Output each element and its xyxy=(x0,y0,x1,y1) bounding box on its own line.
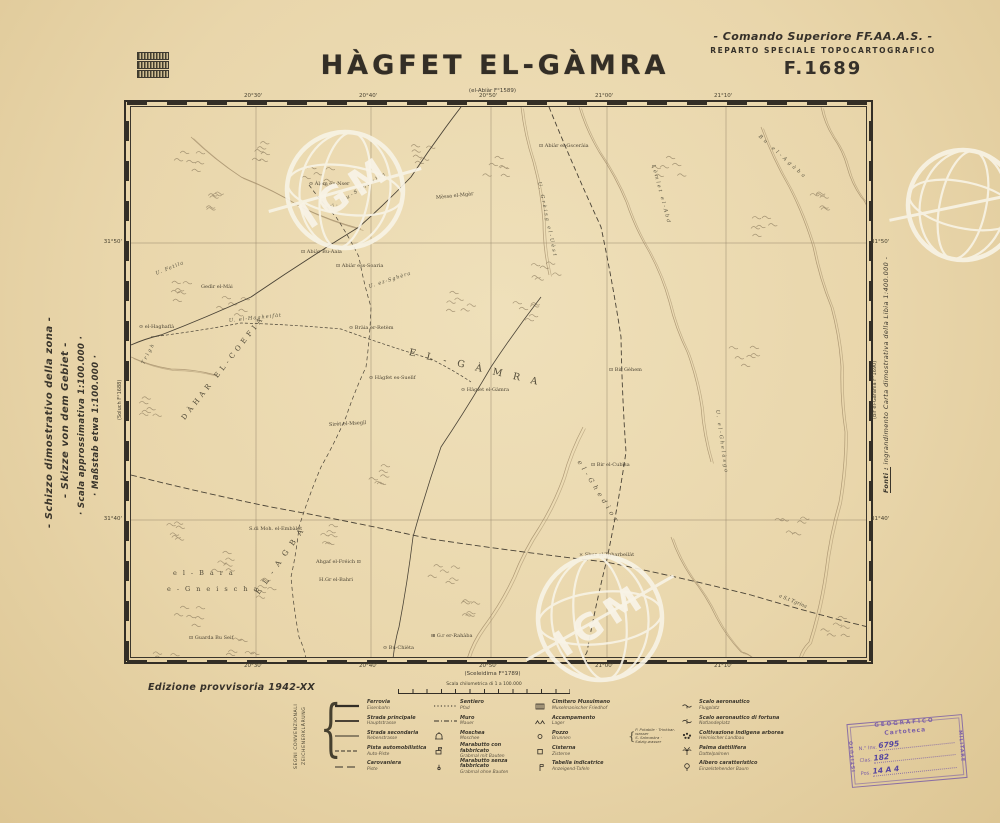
mosque-icon xyxy=(433,731,457,741)
track-icon xyxy=(334,747,364,755)
legend-label-de: Pfad xyxy=(460,706,528,711)
legend-row: Marabutto con fabbricato Grabmal mit Bau… xyxy=(433,745,528,758)
department-line: REPARTO SPECIALE TOPOCARTOGRAFICO xyxy=(708,46,938,55)
map-label: ⊙ Bu-Chièta xyxy=(383,645,414,651)
legend-label: Carovaniera Piste xyxy=(367,761,427,772)
legend-label-it: Marabutto senza fabbricato xyxy=(460,759,528,770)
margin-note-2: - Skizze von dem Gebiet - xyxy=(60,270,71,570)
map-label: H.Gr el-Bahri xyxy=(319,577,353,583)
legend-label-it: Marabutto con fabbricato xyxy=(460,743,528,754)
marab2-icon xyxy=(433,762,457,772)
legend-header-de: ZEICHENERKLÄRUNG xyxy=(302,703,307,769)
legend-symbol-path xyxy=(433,702,457,710)
print-mark xyxy=(137,61,169,69)
legend-symbol-marab2 xyxy=(433,762,446,772)
wall-icon xyxy=(433,717,457,725)
sources-note: Fonti : ingrandimento Carta dimostrativa… xyxy=(882,232,890,517)
tick-label: 20°40' xyxy=(359,663,377,669)
road2-icon xyxy=(334,732,364,740)
legend-row: Sentiero Pfad xyxy=(433,699,528,712)
legend-label: Scalo aeronautico Flugplatz xyxy=(699,700,791,711)
legend-label: Palma dattilifera Dattelpalmen xyxy=(699,746,791,757)
tick-label: 20°50' xyxy=(479,663,497,669)
legend-row: Accampamento Lager xyxy=(534,714,675,727)
map-label: × Sbur el-Tgharbeilàt xyxy=(579,552,634,558)
legend-row: Scalo aeronautico Flugplatz xyxy=(681,699,791,712)
legend-symbol-cem xyxy=(534,701,547,711)
well-brace: { xyxy=(628,730,635,743)
cem-icon xyxy=(534,701,549,711)
legend-label: Scalo aeronautico di fortuna Notlandepla… xyxy=(699,716,791,727)
airfield-icon xyxy=(681,701,696,711)
legend-symbol-tree xyxy=(681,762,694,772)
map-label: ⊡ Guarda Bu Seif xyxy=(189,635,233,641)
map-sheet: HÀGFET EL-GÀMRA - Comando Superiore FF.A… xyxy=(0,0,1000,823)
adjacent-sheet-right: (Bir el-Garanìa F°1690) xyxy=(872,305,878,475)
legend-label-it: Pista automobilistica xyxy=(367,746,427,752)
legend-label-de: Anzeigend-Tafeln xyxy=(552,767,644,772)
legend-row: Albero caratteristico Einzelstehender Ba… xyxy=(681,760,791,773)
legend-symbol-cultiv xyxy=(681,731,694,741)
sources-text: ingrandimento Carta dimostrativa della L… xyxy=(882,256,890,466)
legend-symbol-road1 xyxy=(334,717,360,725)
legend-label: Ferrovia Eisenbahn xyxy=(367,700,427,711)
legend-row: Scalo aeronautico di fortuna Notlandepla… xyxy=(681,714,791,727)
print-mark xyxy=(137,70,169,78)
legend-label-de: Muselmanischer Friedhof xyxy=(552,706,644,711)
legend-row: Strada principale Hauptstrasse xyxy=(334,714,427,727)
legend-label: Moschea Moschee xyxy=(460,731,528,742)
legend-label: Pozzo Brunnen xyxy=(552,731,623,742)
camp-icon xyxy=(534,716,549,726)
legend-row: Pista automobilistica Auto-Piste xyxy=(334,745,427,758)
stamp-line-label: Clas. xyxy=(859,757,872,764)
legend-label: Coltivazione indigena arborea Heimischer… xyxy=(699,731,791,742)
map-label: e-Gneischa xyxy=(167,585,263,593)
legend-label-de: Mauer xyxy=(460,721,528,726)
print-mark xyxy=(137,52,169,60)
legend-label-de: Nebenstrasse xyxy=(367,736,427,741)
legend-label: Muro Mauer xyxy=(460,716,528,727)
legend-label-de: Eisenbahn xyxy=(367,706,427,711)
header-right: - Comando Superiore FF.AA.A.S. - REPARTO… xyxy=(708,30,938,79)
sources-label: Fonti : xyxy=(882,467,890,493)
legend-label: Tabella indicatrice Anzeigend-Tafeln xyxy=(552,761,644,772)
margin-note-1: - Schizzo dimostrativo della zona - xyxy=(44,255,55,590)
tree-icon xyxy=(681,762,696,772)
legend-label-de: Auto-Piste xyxy=(367,752,427,757)
cultiv-icon xyxy=(681,731,696,741)
legend-grid: Ferrovia Eisenbahn Strada principale Hau… xyxy=(334,699,791,773)
legend-row: Palma dattilifera Dattelpalmen xyxy=(681,745,791,758)
legend-label-de: Piste xyxy=(367,767,427,772)
legend-label-de: Moschee xyxy=(460,736,528,741)
legend-header-it: SEGNI CONVENZIONALI xyxy=(294,703,299,769)
map-label: ⊙ Àlem en-Nser xyxy=(309,181,349,187)
tick-label: 20°50' xyxy=(479,93,497,99)
legend-symbol-rail xyxy=(334,702,360,710)
legend-label: Strada principale Hauptstrasse xyxy=(367,716,427,727)
road1-icon xyxy=(334,717,364,725)
map-frame: ⊙ Àlem en-NserU. Bu-SandàllaMèssa el-Mgà… xyxy=(130,106,867,658)
command-line: - Comando Superiore FF.AA.A.S. - xyxy=(708,30,938,43)
map-label: Gedìr el-Mài xyxy=(201,284,233,290)
tick-label: 31°50' xyxy=(102,239,122,245)
map-label: el-Bara xyxy=(173,569,239,577)
tick-label: 21°10' xyxy=(714,663,732,669)
map-label: ⊙ el-Haghaflà xyxy=(139,324,174,330)
stamp-line-label: Pos. xyxy=(861,770,872,777)
tick-label: 31°40' xyxy=(102,516,122,522)
legend-symbol-airfield2 xyxy=(681,716,694,726)
legend-label: Marabutto senza fabbricato Grabmal ohne … xyxy=(460,759,528,775)
tick-label: 21°00' xyxy=(595,93,613,99)
legend-symbol-camp xyxy=(534,716,547,726)
margin-note-3: · Scala approssimativa 1:100.000 · xyxy=(77,280,87,570)
tick-label: 20°30' xyxy=(244,663,262,669)
caravan-icon xyxy=(334,763,364,771)
airfield2-icon xyxy=(681,716,696,726)
legend-row: Moschea Moschee xyxy=(433,730,528,743)
legend-label-de: Hauptstrasse xyxy=(367,721,427,726)
legend-symbol-mosque xyxy=(433,731,446,741)
sign-icon xyxy=(534,762,549,772)
legend: SEGNI CONVENZIONALI ZEICHENERKLÄRUNG { F… xyxy=(294,697,706,777)
legend-label: Albero caratteristico Einzelstehender Ba… xyxy=(699,761,791,772)
legend-symbol-airfield xyxy=(681,701,694,711)
adjacent-sheet-bottom: (Sceleidima F°1789) xyxy=(430,671,555,677)
legend-label-de: Lager xyxy=(552,721,644,726)
legend-row: Strada secondaria Nebenstrasse xyxy=(334,730,427,743)
map-label: ⊡ Bir el-Cubìsa xyxy=(591,462,630,468)
map-label: ⊡ Bir Gèhem xyxy=(609,367,642,373)
legend-label: Cimitero Musulmano Muselmanischer Friedh… xyxy=(552,700,644,711)
terrain-drawing xyxy=(131,107,866,657)
legend-label: Sentiero Pfad xyxy=(460,700,528,711)
library-stamp: GEOGRAFICO ISTITUTO MILITARE Cartoteca N… xyxy=(846,714,967,788)
stamp-body: Cartoteca N.° Inv. 6795Clas. 182Pos. 14 … xyxy=(857,724,957,777)
map-label: Ahgaf el-Fréich ⊡ xyxy=(316,559,361,565)
scale-bar-rule xyxy=(398,689,570,694)
marab1-icon xyxy=(433,746,457,756)
legend-label-de: Flugplatz xyxy=(699,706,791,711)
legend-symbol-caravan xyxy=(334,763,360,771)
map-label: ⊙ Hàgfet el-Gàmra xyxy=(461,387,509,393)
legend-label-de: Zisterne xyxy=(552,752,644,757)
legend-column: Scalo aeronautico FlugplatzScalo aeronau… xyxy=(681,699,791,773)
legend-column: Cimitero Musulmano Muselmanischer Friedh… xyxy=(534,699,675,773)
well-water-types: {P. Potabile · Trinkbar-wasserS. Salmast… xyxy=(628,728,675,745)
map-label: ⊙ Hàgfet es-Suelìf xyxy=(369,375,416,381)
path-icon xyxy=(433,702,457,710)
legend-symbol-palm xyxy=(681,746,694,756)
tick-label: 20°30' xyxy=(244,93,262,99)
scale-bar-label: Scala chilometrica di 1 a 100.000 xyxy=(398,682,570,687)
well-water-line: S. Salmastra · Salzig-wasser xyxy=(635,736,675,744)
page-title: HÀGFET EL-GÀMRA xyxy=(290,50,700,81)
legend-row: Cisterna Zisterne xyxy=(534,745,675,758)
margin-note-4: · Maßstab etwa 1:100.000 · xyxy=(91,290,101,560)
legend-label: Marabutto con fabbricato Grabmal mit Bau… xyxy=(460,743,528,759)
legend-row: Ferrovia Eisenbahn xyxy=(334,699,427,712)
legend-row: Coltivazione indigena arborea Heimischer… xyxy=(681,730,791,743)
sheet-number: F.1689 xyxy=(708,58,938,79)
map-label: ⊙ Bràia er-Retèm xyxy=(349,325,393,331)
scale-bar: Scala chilometrica di 1 a 100.000 xyxy=(398,682,570,694)
frame-band-top xyxy=(127,102,870,105)
map-label: ⊡ Abiàr Bu-Aala xyxy=(301,249,342,255)
tick-label: 21°10' xyxy=(714,93,732,99)
tick-label: 20°40' xyxy=(359,93,377,99)
legend-label-de: Grabmal ohne Bauten xyxy=(460,770,528,775)
legend-label-de: Dattelpalmen xyxy=(699,752,791,757)
legend-label: Pista automobilistica Auto-Piste xyxy=(367,746,427,757)
legend-symbol-cistern xyxy=(534,746,547,756)
legend-label-de: Notlandeplatz xyxy=(699,721,791,726)
legend-symbol-track xyxy=(334,747,360,755)
legend-symbol-well xyxy=(534,731,547,741)
legend-symbol-sign xyxy=(534,762,547,772)
map-label: ⊡ Abiàr ess-Soarìa xyxy=(336,263,383,269)
legend-row: Muro Mauer xyxy=(433,714,528,727)
map-label: ⊞ G.r er-Rahàba xyxy=(431,633,472,639)
edition-note: Edizione provvisoria 1942-XX xyxy=(148,682,315,693)
legend-label: Strada secondaria Nebenstrasse xyxy=(367,731,427,742)
legend-column: Sentiero Pfad Muro MauerMoschea MoscheeM… xyxy=(433,699,528,773)
map-label: ⊡ Abiàr el-Gsceràia xyxy=(539,143,589,149)
map-canvas: ⊙ Àlem en-NserU. Bu-SandàllaMèssa el-Mgà… xyxy=(131,107,866,657)
well-icon xyxy=(534,731,549,741)
legend-row: Pozzo Brunnen{P. Potabile · Trinkbar-was… xyxy=(534,730,675,743)
adjacent-sheet-left: (Soluch F°1688) xyxy=(117,325,123,475)
legend-row: Marabutto senza fabbricato Grabmal ohne … xyxy=(433,760,528,773)
legend-label-de: Brunnen xyxy=(552,736,623,741)
legend-symbol-wall xyxy=(433,717,457,725)
legend-symbol-road2 xyxy=(334,732,360,740)
legend-label-de: Einzelstehender Baum xyxy=(699,767,791,772)
legend-row: Cimitero Musulmano Muselmanischer Friedh… xyxy=(534,699,675,712)
stamp-line-label: N.° Inv. xyxy=(858,744,877,752)
palm-icon xyxy=(681,746,696,756)
legend-label-de: Heimischer Landbau xyxy=(699,736,791,741)
legend-symbol-marab1 xyxy=(433,746,446,756)
frame-band-left xyxy=(126,103,129,661)
legend-row: Tabella indicatrice Anzeigend-Tafeln xyxy=(534,760,675,773)
cistern-icon xyxy=(534,746,549,756)
legend-label: Accampamento Lager xyxy=(552,716,644,727)
legend-row: Carovaniera Piste xyxy=(334,760,427,773)
frame-band-bottom xyxy=(127,660,870,663)
tick-label: 21°00' xyxy=(595,663,613,669)
legend-column: Ferrovia Eisenbahn Strada principale Hau… xyxy=(334,699,427,773)
rail-icon xyxy=(334,702,364,710)
legend-label: Cisterna Zisterne xyxy=(552,746,644,757)
